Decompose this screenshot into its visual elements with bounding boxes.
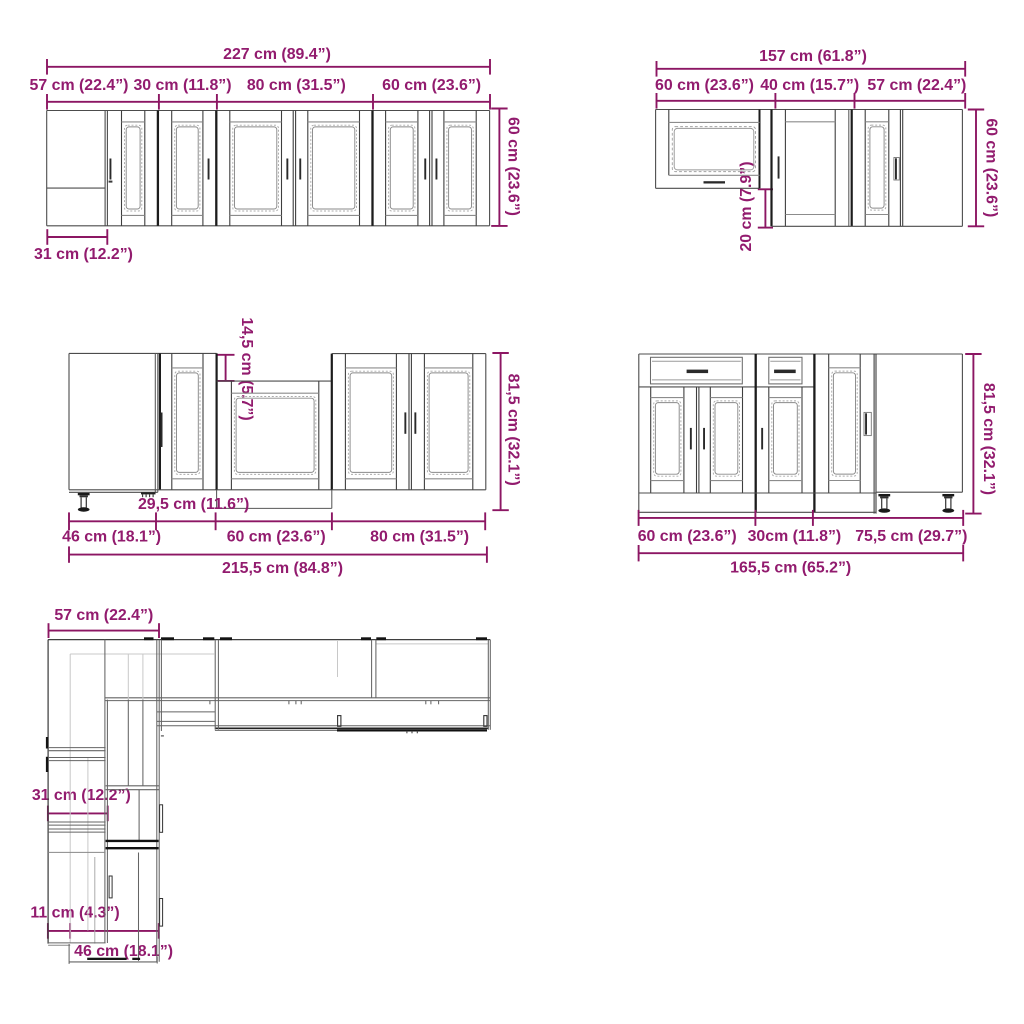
svg-text:30cm (11.8”): 30cm (11.8”) (748, 528, 842, 545)
svg-text:40 cm (15.7”): 40 cm (15.7”) (760, 77, 859, 94)
svg-text:57 cm (22.4”): 57 cm (22.4”) (30, 77, 129, 94)
svg-text:29,5 cm (11.6”): 29,5 cm (11.6”) (138, 496, 249, 513)
svg-text:60 cm (23.6”): 60 cm (23.6”) (504, 117, 521, 216)
svg-text:215,5 cm (84.8”): 215,5 cm (84.8”) (222, 560, 343, 577)
svg-text:60 cm (23.6”): 60 cm (23.6”) (382, 77, 481, 94)
svg-text:157 cm (61.8”): 157 cm (61.8”) (759, 48, 867, 65)
svg-text:60 cm (23.6”): 60 cm (23.6”) (655, 77, 754, 94)
svg-text:60 cm (23.6”): 60 cm (23.6”) (983, 118, 1000, 217)
svg-text:57 cm (22.4”): 57 cm (22.4”) (54, 607, 153, 624)
svg-text:14,5 cm (5.7”): 14,5 cm (5.7”) (238, 317, 255, 420)
svg-text:80 cm (31.5”): 80 cm (31.5”) (370, 529, 469, 546)
svg-text:46 cm (18.1”): 46 cm (18.1”) (74, 943, 173, 960)
svg-text:11 cm (4.3”): 11 cm (4.3”) (30, 904, 119, 921)
svg-text:81,5 cm (32.1”): 81,5 cm (32.1”) (980, 383, 997, 495)
svg-text:57 cm (22.4”): 57 cm (22.4”) (867, 77, 966, 94)
svg-text:30 cm (11.8”): 30 cm (11.8”) (133, 77, 231, 94)
svg-text:80 cm (31.5”): 80 cm (31.5”) (247, 77, 346, 94)
svg-text:46 cm (18.1”): 46 cm (18.1”) (62, 529, 161, 546)
svg-text:60 cm (23.6”): 60 cm (23.6”) (638, 528, 737, 545)
svg-text:81,5 cm (32.1”): 81,5 cm (32.1”) (505, 374, 522, 486)
svg-text:227 cm (89.4”): 227 cm (89.4”) (223, 46, 331, 63)
svg-text:75,5 cm (29.7”): 75,5 cm (29.7”) (855, 528, 967, 545)
svg-text:60 cm (23.6”): 60 cm (23.6”) (227, 529, 326, 546)
svg-text:165,5 cm (65.2”): 165,5 cm (65.2”) (730, 560, 851, 577)
svg-text:31 cm (12.2”): 31 cm (12.2”) (34, 246, 133, 263)
